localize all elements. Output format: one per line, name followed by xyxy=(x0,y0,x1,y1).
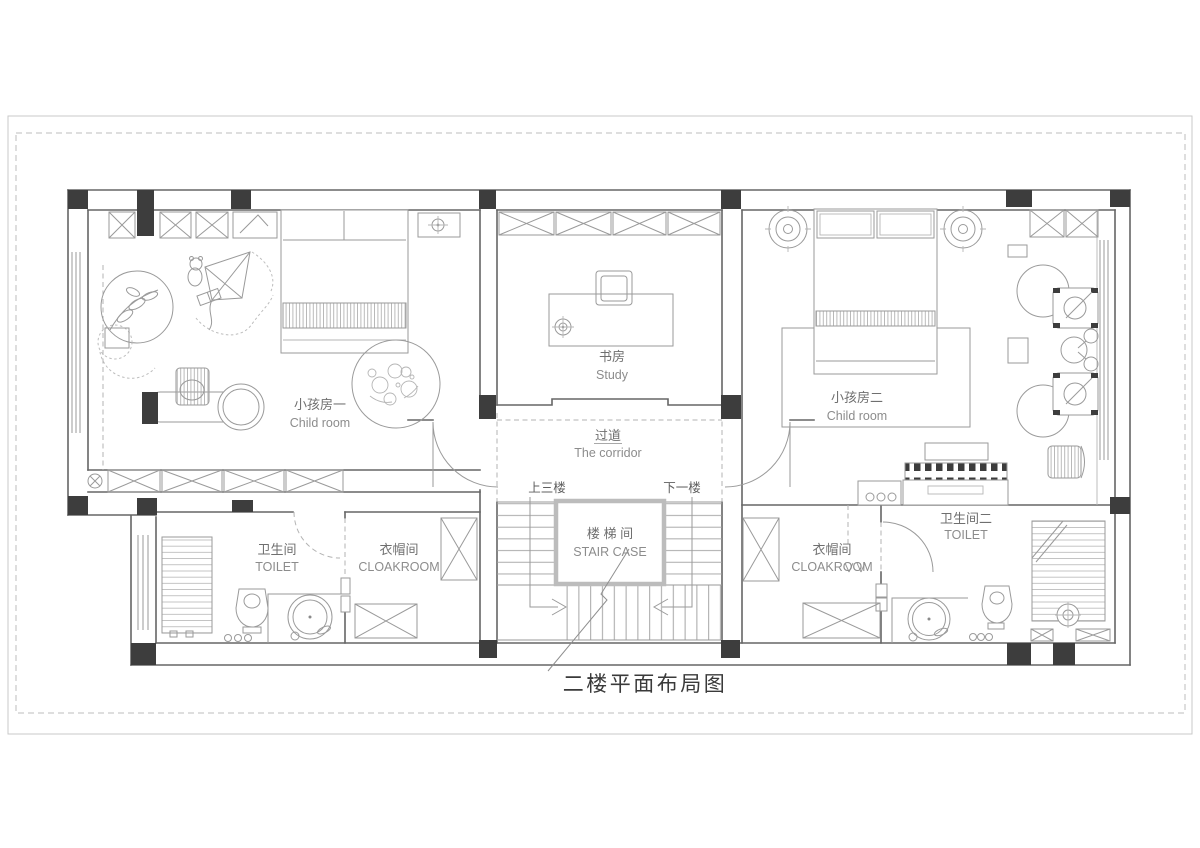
bed-icon-2 xyxy=(814,209,937,374)
plant-icon xyxy=(98,271,173,378)
pillow-cabinet xyxy=(233,212,277,238)
child1-label-cn: 小孩房一 xyxy=(294,397,346,412)
page-border xyxy=(8,116,1192,734)
door-arc xyxy=(725,422,790,487)
bed-icon xyxy=(281,210,408,353)
armchair-icon xyxy=(1053,373,1098,415)
bedside-lamp-icon xyxy=(765,206,811,252)
desk-icon xyxy=(549,271,673,346)
ceiling-fan-icon xyxy=(418,213,460,237)
circle-x-symbol xyxy=(88,474,102,488)
wc-icon xyxy=(970,586,1013,641)
shelf xyxy=(1008,245,1027,257)
wc-icon xyxy=(225,589,269,642)
door-arc xyxy=(433,422,498,487)
toilet-right-label-cn: 卫生间二 xyxy=(940,511,992,526)
cloakroom-left-label-cn: 衣帽间 xyxy=(379,542,418,557)
door-arc xyxy=(294,512,340,558)
piano-stool-icon xyxy=(1048,446,1085,478)
study-label-en: Study xyxy=(596,368,629,382)
child2-label-cn: 小孩房二 xyxy=(831,390,883,405)
shower-icon xyxy=(1032,521,1105,628)
cloakroom-left xyxy=(341,578,350,612)
bedside-lamp-icon xyxy=(940,206,986,252)
washbasin-icon xyxy=(892,598,968,643)
shower-icon xyxy=(162,537,212,633)
shelf xyxy=(1008,338,1028,363)
staircase-label-cn: 楼 梯 间 xyxy=(587,526,633,541)
child2-label-en: Child room xyxy=(827,409,887,423)
floor-plan-page: 小孩房一 Child room 书房 Study 小孩房二 Child room… xyxy=(0,0,1200,848)
toilet-left-label-cn: 卫生间 xyxy=(257,542,296,557)
side-table-icon xyxy=(1061,337,1087,363)
play-table-icon xyxy=(150,368,264,430)
door-arc xyxy=(883,522,933,572)
cloakroom-left-label-en: CLOAKROOM xyxy=(358,560,439,574)
armchair-icon xyxy=(1053,288,1098,328)
toilet-left xyxy=(162,512,348,643)
plan-title: 二楼平面布局图 xyxy=(563,673,728,696)
corridor-label-en: The corridor xyxy=(574,446,641,460)
stair-label-box xyxy=(556,501,664,584)
staircase-label-en: STAIR CASE xyxy=(573,545,646,559)
cloakroom-right-label-cn: 衣帽间 xyxy=(812,542,851,557)
staircase xyxy=(497,497,723,671)
floor-plan-svg: 小孩房一 Child room 书房 Study 小孩房二 Child room… xyxy=(0,0,1200,848)
teddy-bear-icon xyxy=(188,252,273,335)
child1-label-en: Child room xyxy=(290,416,350,430)
room-study xyxy=(549,271,673,346)
stairs-down-label: 下一楼 xyxy=(663,480,701,495)
study-label-cn: 书房 xyxy=(599,349,625,364)
floor-lamp-icon xyxy=(1078,329,1098,371)
room-child2 xyxy=(765,206,1098,505)
toilet-right-label-en: TOILET xyxy=(944,528,988,542)
piano-icon xyxy=(858,443,1008,505)
stairs-up-label: 上三楼 xyxy=(528,480,566,495)
cloakroom-right-label-en: CLOAKROOM xyxy=(791,560,872,574)
corridor-label-cn: 过道 xyxy=(595,428,621,443)
toilet-left-label-en: TOILET xyxy=(255,560,299,574)
washbasin-icon xyxy=(268,594,348,643)
